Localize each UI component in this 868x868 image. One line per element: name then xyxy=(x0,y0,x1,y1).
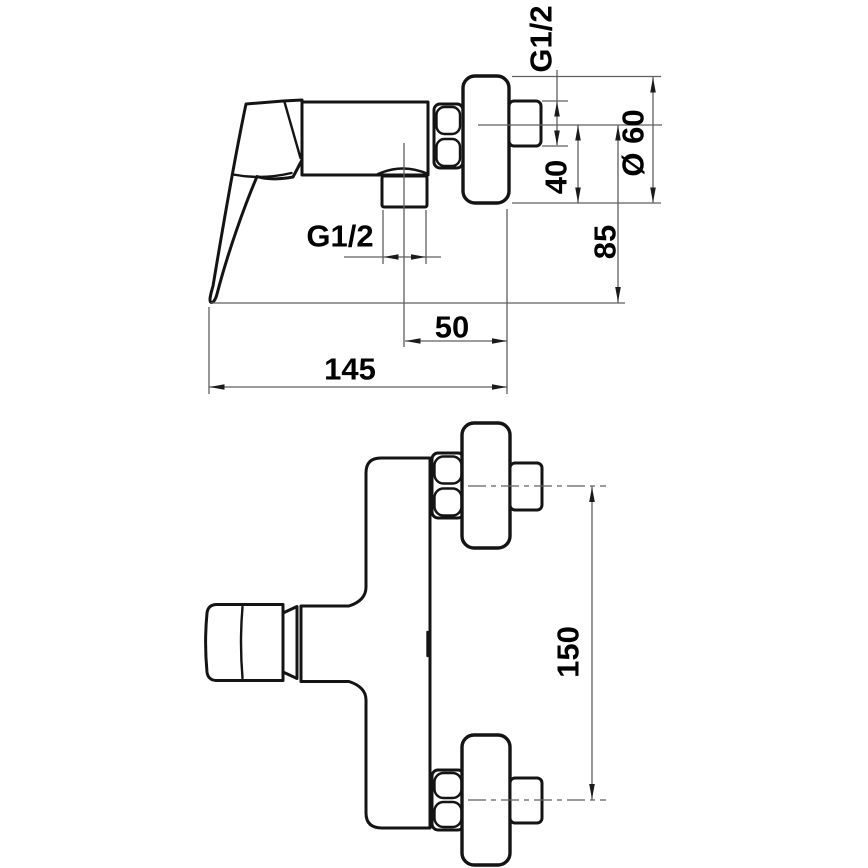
dimension-label-wall-thread: G1/2 xyxy=(524,5,559,72)
front-view: 150 xyxy=(206,423,607,865)
hex-nut-bottom-facet-upper xyxy=(435,773,462,798)
dimension-axis-to-body-bottom: 40 xyxy=(539,125,581,203)
handle-lever-side xyxy=(210,100,302,303)
arrowhead-left xyxy=(406,338,421,344)
hex-nut-side-facet-top xyxy=(437,107,461,134)
dimension-label-axis-to-body-bottom: 40 xyxy=(539,160,574,194)
mixer-body-front xyxy=(301,458,430,828)
arrowhead-up xyxy=(589,487,595,502)
arrowhead-right xyxy=(492,338,507,344)
arrowhead-right xyxy=(492,384,507,390)
thread-nipple-side xyxy=(509,101,541,146)
arrowhead-right xyxy=(411,254,426,260)
arrowhead-down xyxy=(575,188,581,203)
arrowhead-down xyxy=(615,287,621,302)
arrowhead-down xyxy=(554,131,560,146)
arrowhead-down xyxy=(650,188,656,203)
dimension-overall-depth: 145 xyxy=(209,352,507,390)
dimension-label-escutcheon-diameter: Ø 60 xyxy=(616,109,651,176)
hex-nut-bottom-facet-lower xyxy=(435,802,462,827)
handle-knob-front xyxy=(206,605,284,681)
dimension-escutcheon-diameter: Ø 60 xyxy=(616,77,656,204)
arrowhead-up xyxy=(554,102,560,117)
handle-neck-front xyxy=(283,607,297,679)
arrowhead-up xyxy=(575,126,581,141)
dimension-label-outlet-axis-to-wall: 50 xyxy=(435,310,469,345)
dimension-label-outlet-thread: G1/2 xyxy=(306,219,373,254)
dimension-outlet-axis-to-wall: 50 xyxy=(405,310,507,345)
dimension-label-axis-to-handle-bottom: 85 xyxy=(588,225,623,259)
hex-nut-top-facet-upper xyxy=(435,457,462,484)
dimension-connection-centres: 150 xyxy=(551,486,595,800)
hex-nut-top-facet-lower xyxy=(435,489,462,516)
technical-drawing-canvas: G1/2 Ø 60 40 85 G1/2 xyxy=(0,0,868,868)
arrowhead-left xyxy=(210,384,225,390)
mixer-body-side xyxy=(302,102,428,175)
dimension-outlet-thread: G1/2 xyxy=(306,219,441,260)
hex-nut-side-facet-bottom xyxy=(437,139,461,166)
wall-escutcheon-side xyxy=(463,76,509,203)
dimension-label-connection-centres: 150 xyxy=(551,626,586,678)
arrowhead-down xyxy=(589,784,595,799)
arrowhead-up xyxy=(650,78,656,93)
dimension-label-overall-depth: 145 xyxy=(324,352,376,387)
arrowhead-left xyxy=(384,254,399,260)
technical-drawing-page: G1/2 Ø 60 40 85 G1/2 xyxy=(0,0,868,868)
side-view: G1/2 Ø 60 40 85 G1/2 xyxy=(209,5,662,394)
